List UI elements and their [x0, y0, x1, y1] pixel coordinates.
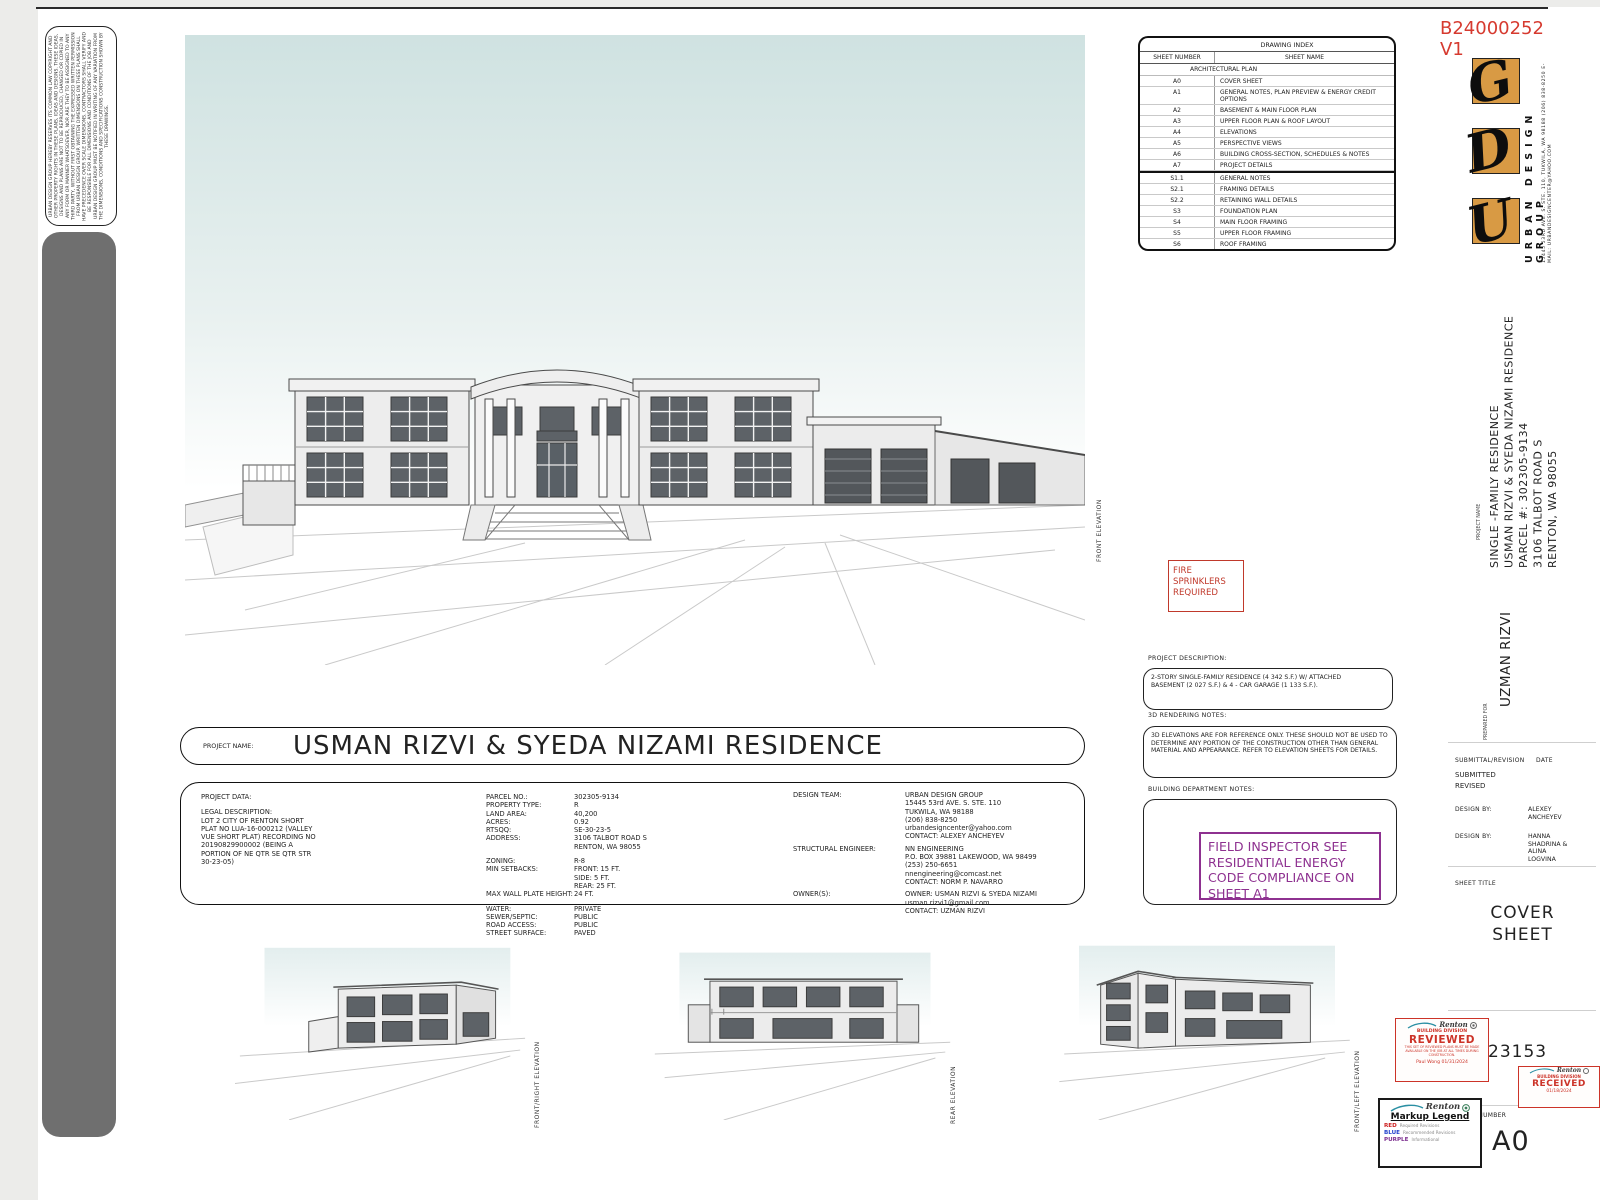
legend-red: RED: [1384, 1123, 1397, 1129]
renton-city-name: Renton: [1426, 1102, 1460, 1112]
index-row: S2.1FRAMING DETAILS: [1140, 184, 1394, 195]
designer-1: ALEXEY ANCHEYEV: [1528, 806, 1562, 821]
index-row: A2BASEMENT & MAIN FLOOR PLAN: [1140, 105, 1394, 116]
sheet-number: A0: [1492, 1126, 1530, 1157]
building-dept-notes-label: BUILDING DEPARTMENT NOTES:: [1148, 786, 1255, 793]
index-row: A1GENERAL NOTES, PLAN PREVIEW & ENERGY C…: [1140, 87, 1394, 105]
index-row: A3UPPER FLOOR PLAN & ROOF LAYOUT: [1140, 116, 1394, 127]
logo-letter-d: D: [1459, 115, 1518, 185]
reviewed-note: THIS SET OF REVIEWED PLANS MUST BE MADE …: [1396, 1046, 1488, 1058]
tb-project-name-label: PROJECT NAME: [1477, 300, 1482, 540]
tb-prepared-for-name: UZMAN RIZVI: [1498, 582, 1514, 707]
building-dept-notes-box: FIELD INSPECTOR SEE RESIDENTIAL ENERGY C…: [1143, 799, 1397, 905]
project-data-site: PARCEL NO.:302305-9134 PROPERTY TYPE:R L…: [486, 793, 786, 938]
renton-city-name: Renton: [1557, 1067, 1581, 1074]
rendering-notes-label: 3D RENDERING NOTES:: [1148, 712, 1227, 719]
col-header-sheet-name: SHEET NAME: [1214, 52, 1394, 63]
tb-project-name-lines: SINGLE -FAMILY RESIDENCE USMAN RIZVI & S…: [1488, 268, 1561, 568]
project-data-legal: PROJECT DATA: LEGAL DESCRIPTION: LOT 2 C…: [201, 793, 466, 866]
submittal-label: SUBMITTAL/REVISION: [1455, 757, 1525, 764]
received-date: 01/18/2024: [1519, 1089, 1599, 1094]
legend-blue: BLUE: [1384, 1130, 1400, 1136]
renton-seal-icon: [1462, 1104, 1470, 1112]
received-text: RECEIVED: [1519, 1079, 1599, 1089]
field-inspector-stamp: FIELD INSPECTOR SEE RESIDENTIAL ENERGY C…: [1199, 832, 1381, 900]
left-margin-bar: [42, 232, 116, 1137]
copyright-notice-box: URBAN DESIGN GROUP HEREBY RESERVES ITS C…: [45, 26, 117, 226]
index-row: A4ELEVATIONS: [1140, 127, 1394, 138]
renton-seal-icon: [1470, 1022, 1477, 1029]
renton-seal-icon: [1583, 1068, 1589, 1074]
mini-render-front-left: [1058, 928, 1356, 1124]
index-row: A6BUILDING CROSS-SECTION, SCHEDULES & NO…: [1140, 149, 1394, 160]
index-row: S3FOUNDATION PLAN: [1140, 206, 1394, 217]
renton-city-name: Renton: [1439, 1020, 1467, 1029]
index-row: S4MAIN FLOOR FRAMING: [1140, 217, 1394, 228]
designer-2: HANNA SHADRINA & ALINA LOGVINA: [1528, 833, 1567, 863]
main-rendering-front-elevation: [185, 35, 1085, 665]
markup-legend: Renton Markup Legend REDRequired Revisio…: [1378, 1098, 1482, 1168]
titleblock-divider: [1448, 742, 1596, 743]
mini-render-rear: [650, 928, 955, 1124]
titleblock-divider: [1448, 866, 1596, 867]
page-margin-left: [0, 0, 38, 1200]
index-row: A5PERSPECTIVE VIEWS: [1140, 138, 1394, 149]
project-data-box: PROJECT DATA: LEGAL DESCRIPTION: LOT 2 C…: [180, 782, 1085, 905]
mini-render-front-right: [235, 928, 530, 1124]
drawing-index-table: DRAWING INDEX SHEET NUMBER SHEET NAME AR…: [1138, 36, 1396, 251]
drawing-index-headers: SHEET NUMBER SHEET NAME: [1140, 52, 1394, 64]
project-name-bar: PROJECT NAME: USMAN RIZVI & SYEDA NIZAMI…: [180, 727, 1085, 765]
index-row: S2.2RETAINING WALL DETAILS: [1140, 195, 1394, 206]
project-data-title: PROJECT DATA:: [201, 793, 466, 801]
date-label: DATE: [1536, 757, 1553, 764]
sheet-title: COVER SHEET: [1455, 902, 1590, 946]
legend-purple: PURPLE: [1384, 1137, 1408, 1143]
index-row: S1.1GENERAL NOTES: [1140, 171, 1394, 184]
project-name-label: PROJECT NAME:: [203, 742, 293, 750]
index-row: A0COVER SHEET: [1140, 76, 1394, 87]
titleblock-divider: [1448, 1010, 1596, 1011]
tb-prepared-for-label: PREPARED FOR: [1484, 688, 1489, 740]
architectural-cover-sheet: URBAN DESIGN GROUP HEREBY RESERVES ITS C…: [0, 0, 1600, 1200]
rear-elevation-label: REAR ELEVATION: [950, 1058, 957, 1124]
col-header-sheet-number: SHEET NUMBER: [1140, 52, 1214, 63]
received-stamp: Renton BUILDING DIVISION RECEIVED 01/18/…: [1518, 1066, 1600, 1108]
firm-address-vertical: 15445 53RD AVE. S. STE. 110, TUKWILA, WA…: [1542, 58, 1554, 263]
index-row: A7PROJECT DETAILS: [1140, 160, 1394, 171]
renton-swoosh-icon: [1390, 1103, 1424, 1112]
page-margin-top: [0, 0, 1600, 7]
front-right-elevation-label: FRONT/RIGHT ELEVATION: [534, 1032, 541, 1128]
section-architectural-plan: ARCHITECTURAL PLAN: [1140, 64, 1394, 76]
legal-description-text: LOT 2 CITY OF RENTON SHORT PLAT NO LUA-1…: [201, 817, 466, 867]
reviewed-signature: Paul Wong 01/31/2024: [1396, 1060, 1488, 1065]
project-data-team: DESIGN TEAM:URBAN DESIGN GROUP 15445 53r…: [793, 791, 1078, 915]
design-by-label-2: DESIGN BY:: [1455, 833, 1492, 840]
design-by-label-1: DESIGN BY:: [1455, 806, 1492, 813]
revised-row: REVISED: [1455, 782, 1485, 790]
project-name-value: USMAN RIZVI & SYEDA NIZAMI RESIDENCE: [293, 731, 883, 761]
legal-description-label: LEGAL DESCRIPTION:: [201, 808, 466, 816]
front-left-elevation-label: FRONT/LEFT ELEVATION: [1354, 1040, 1361, 1132]
firm-logo: G D U URBAN DESIGN GROUP 15445 53RD AVE.…: [1466, 58, 1596, 263]
project-number: 23153: [1488, 1042, 1547, 1062]
copyright-text: URBAN DESIGN GROUP HEREBY RESERVES ITS C…: [49, 31, 111, 221]
submitted-row: SUBMITTED: [1455, 771, 1496, 779]
renton-swoosh-icon: [1407, 1021, 1437, 1029]
index-row: S5UPPER FLOOR FRAMING: [1140, 228, 1394, 239]
sheet-title-label: SHEET TITLE: [1455, 880, 1496, 887]
front-elevation-render: [185, 35, 1085, 665]
project-description-box: 2-STORY SINGLE-FAMILY RESIDENCE (4 342 S…: [1143, 668, 1393, 710]
front-elevation-label: FRONT ELEVATION: [1096, 478, 1103, 562]
markup-legend-title: Markup Legend: [1384, 1112, 1476, 1122]
renton-swoosh-icon: [1529, 1067, 1555, 1074]
reviewed-stamp: Renton BUILDING DIVISION REVIEWED THIS S…: [1395, 1018, 1489, 1082]
index-row: S6ROOF FRAMING: [1140, 239, 1394, 249]
fire-sprinklers-note: FIRE SPRINKLERS REQUIRED: [1168, 560, 1244, 612]
sheet-border-top: [36, 7, 1548, 9]
drawing-index-title: DRAWING INDEX: [1140, 38, 1394, 52]
project-description-label: PROJECT DESCRIPTION:: [1148, 655, 1227, 662]
rendering-notes-box: 3D ELEVATIONS ARE FOR REFERENCE ONLY. TH…: [1143, 726, 1397, 778]
